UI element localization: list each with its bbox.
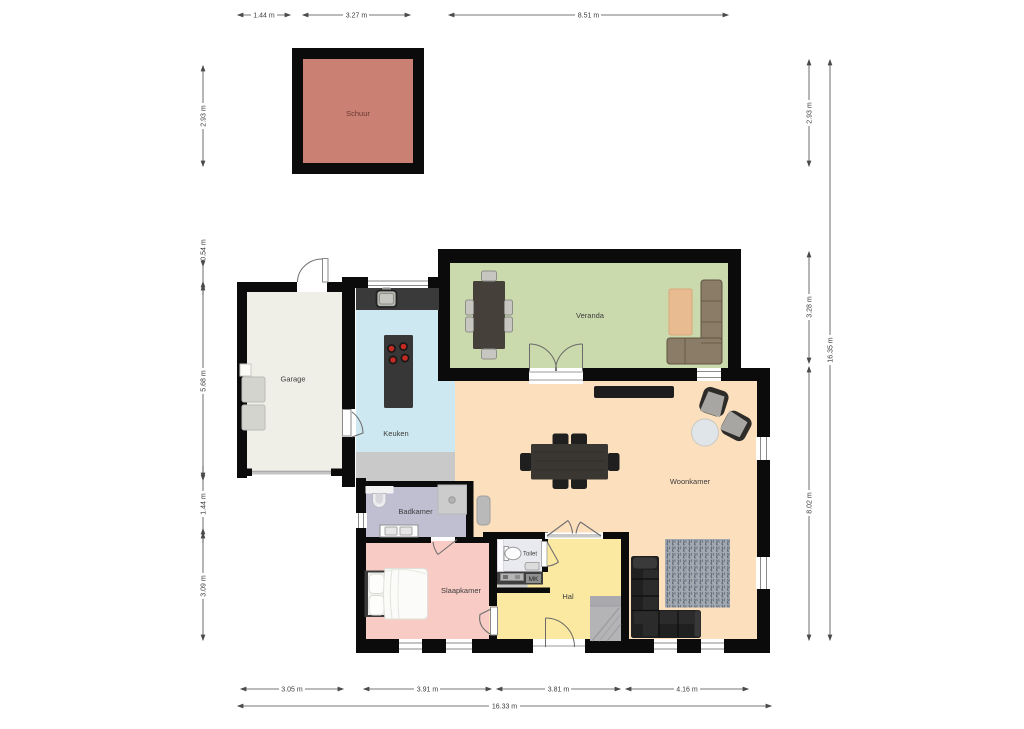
- svg-text:3.81 m: 3.81 m: [548, 687, 570, 694]
- svg-text:5.68 m: 5.68 m: [201, 370, 208, 392]
- svg-text:2.93 m: 2.93 m: [201, 105, 208, 127]
- svg-text:Keuken: Keuken: [383, 429, 408, 438]
- svg-text:2.93 m: 2.93 m: [807, 102, 814, 124]
- svg-text:0.54 m: 0.54 m: [201, 239, 208, 261]
- svg-text:3.09 m: 3.09 m: [201, 575, 208, 597]
- svg-text:Badkamer: Badkamer: [398, 507, 433, 516]
- svg-text:Schuur: Schuur: [346, 109, 370, 118]
- svg-text:Garage: Garage: [280, 375, 305, 384]
- svg-text:1.44 m: 1.44 m: [201, 493, 208, 515]
- svg-text:Woonkamer: Woonkamer: [670, 477, 711, 486]
- svg-text:8.51 m: 8.51 m: [578, 13, 600, 20]
- svg-text:3.91 m: 3.91 m: [417, 687, 439, 694]
- svg-text:Veranda: Veranda: [576, 311, 605, 320]
- svg-text:3.28 m: 3.28 m: [807, 296, 814, 318]
- svg-text:16.35 m: 16.35 m: [828, 337, 835, 362]
- svg-text:3.27 m: 3.27 m: [346, 13, 368, 20]
- svg-text:Slaapkamer: Slaapkamer: [441, 586, 482, 595]
- svg-text:Toilet: Toilet: [523, 552, 537, 558]
- svg-text:8.02 m: 8.02 m: [807, 492, 814, 514]
- svg-text:4.16 m: 4.16 m: [676, 687, 698, 694]
- svg-text:Hal: Hal: [562, 592, 574, 601]
- svg-text:16.33 m: 16.33 m: [492, 704, 517, 711]
- svg-text:3.05 m: 3.05 m: [281, 687, 303, 694]
- svg-text:1.44 m: 1.44 m: [253, 13, 275, 20]
- svg-text:MK: MK: [529, 576, 539, 583]
